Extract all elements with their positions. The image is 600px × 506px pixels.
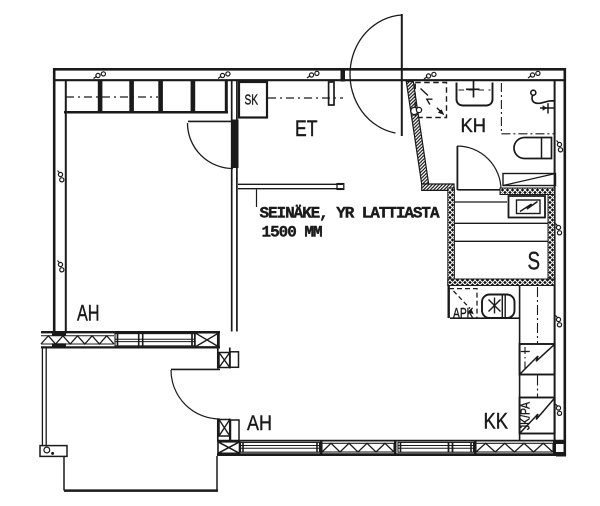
svg-text:KK: KK	[484, 408, 509, 433]
svg-text:1500 MM: 1500 MM	[262, 224, 322, 242]
svg-text:AH: AH	[77, 300, 100, 325]
svg-text:SK: SK	[245, 93, 259, 109]
svg-text:APK: APK	[453, 306, 474, 322]
svg-text:S: S	[528, 248, 541, 276]
svg-text:JK/PA: JK/PA	[518, 402, 533, 430]
svg-text:SEINÄKE, YR LATTIASTA: SEINÄKE, YR LATTIASTA	[260, 204, 440, 223]
svg-text:AH: AH	[247, 412, 272, 435]
svg-text:ET: ET	[295, 116, 318, 141]
svg-text:KH: KH	[461, 115, 487, 137]
